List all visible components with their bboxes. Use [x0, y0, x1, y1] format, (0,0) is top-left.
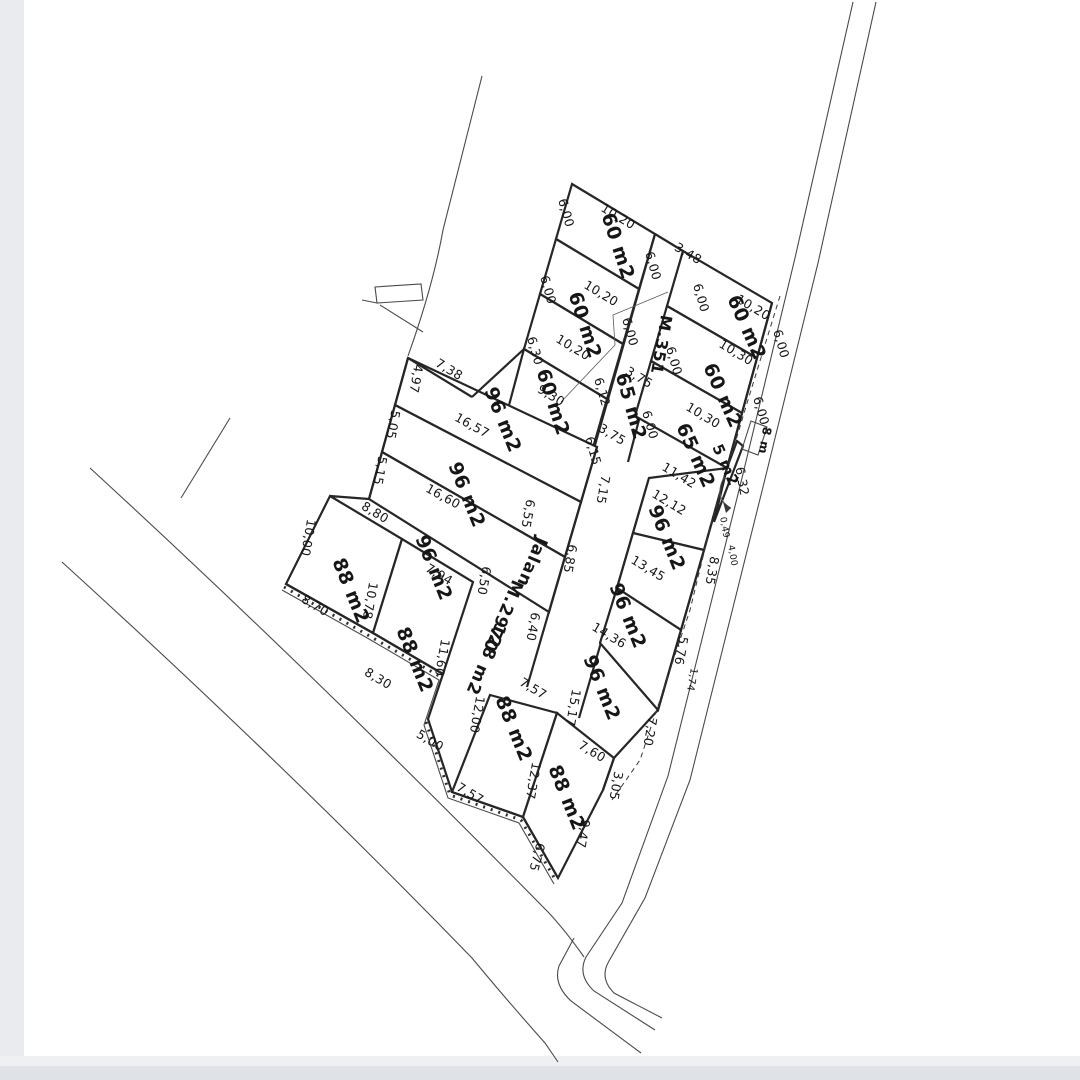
parcel-map-svg: 60 m260 m260 m265 m260 m260 m265 m25 m29… — [0, 0, 1080, 1080]
bottom-edge-band — [0, 1066, 1080, 1080]
survey-drawing-page: 60 m260 m260 m265 m260 m260 m265 m25 m29… — [0, 0, 1080, 1080]
bottom-edge-band-light — [0, 1056, 1080, 1066]
left-edge-band — [0, 0, 24, 1080]
